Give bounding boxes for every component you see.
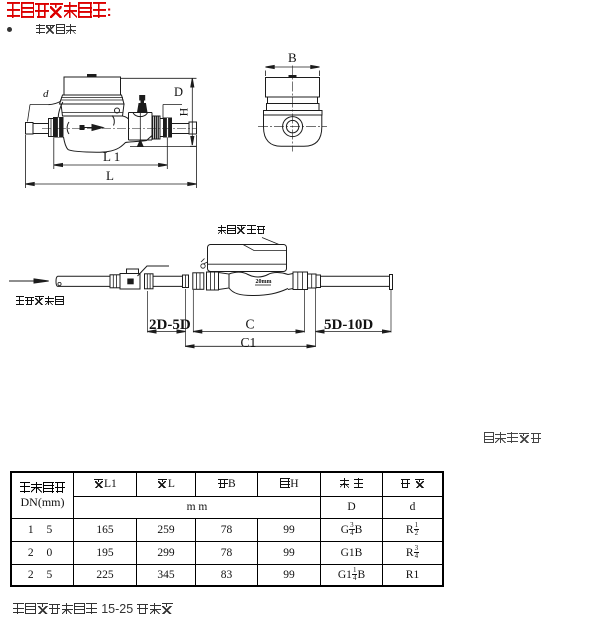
svg-text:D: D — [174, 85, 183, 99]
svg-text:d: d — [43, 88, 49, 100]
svg-text:H: H — [177, 107, 191, 116]
svg-text:20mm: 20mm — [256, 279, 272, 285]
svg-text:5D-10D: 5D-10D — [324, 317, 373, 333]
svg-text:L 1: L 1 — [103, 149, 120, 164]
svg-text:C1: C1 — [241, 335, 257, 350]
svg-text:C: C — [246, 317, 255, 332]
svg-text:L: L — [106, 168, 114, 183]
svg-text:B: B — [288, 50, 297, 65]
svg-text:2D-5D: 2D-5D — [149, 317, 191, 333]
